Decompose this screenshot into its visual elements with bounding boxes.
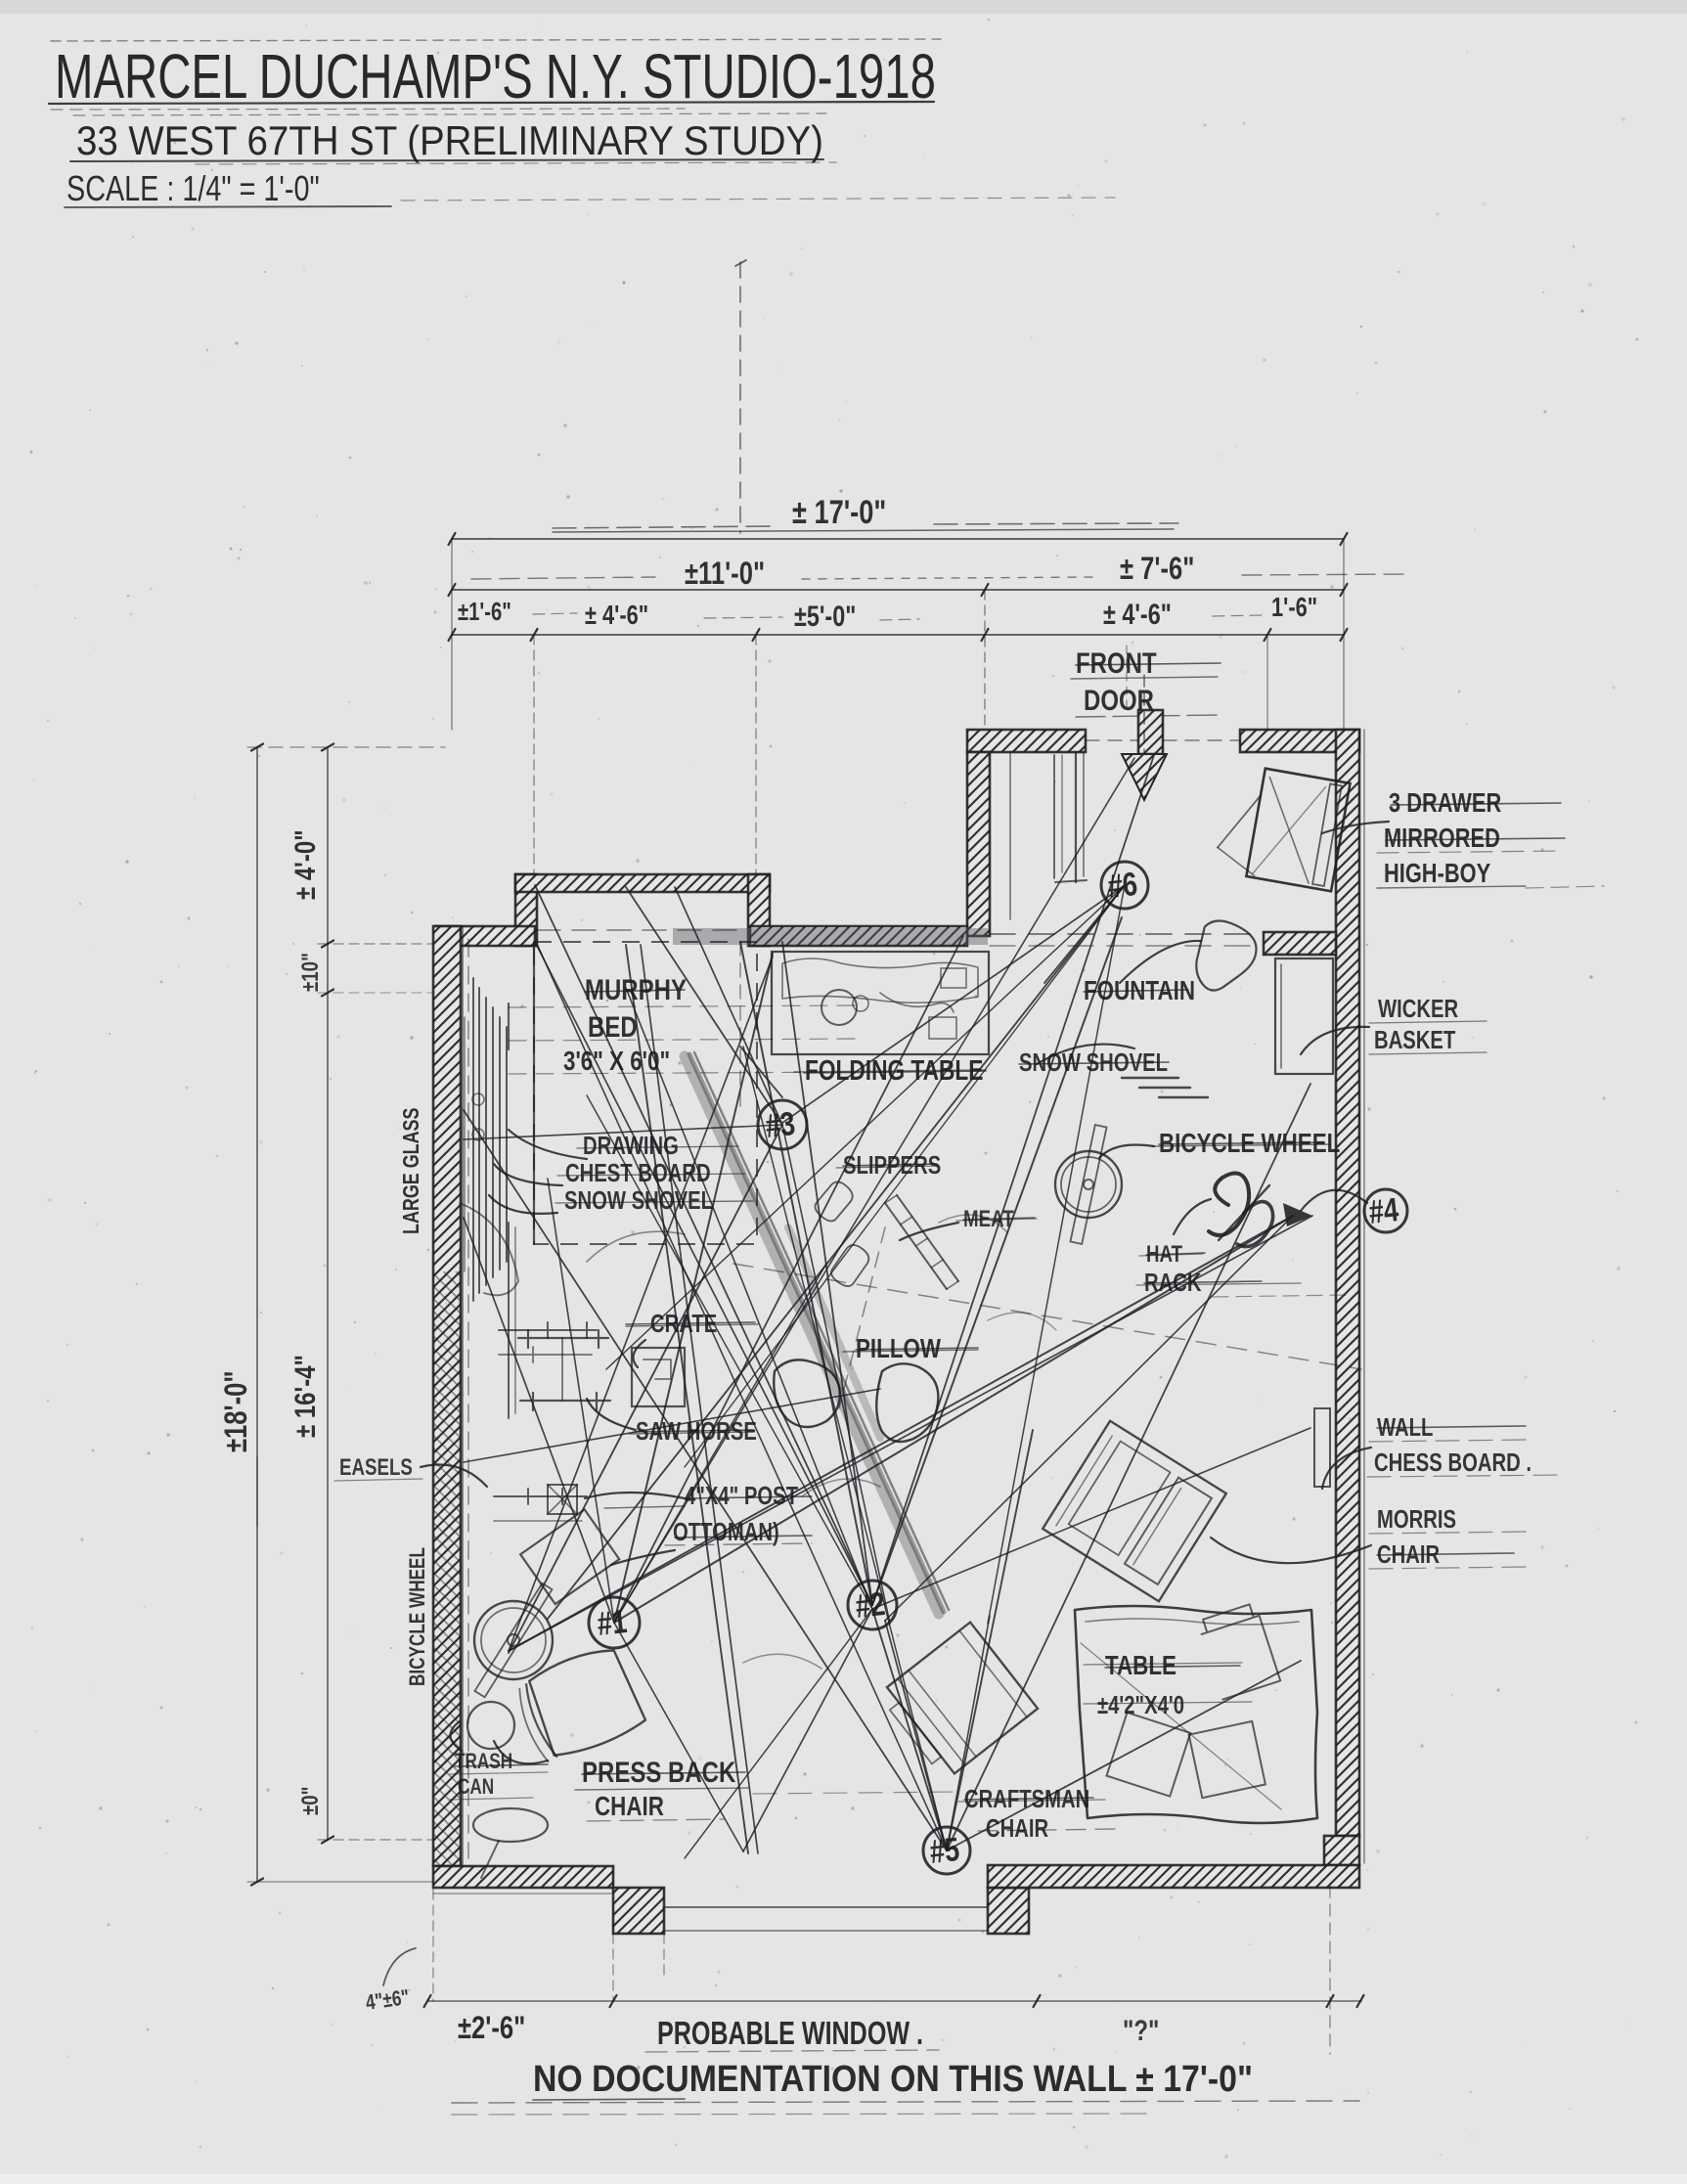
svg-text:±4'2"X4'0: ±4'2"X4'0 [1097, 1691, 1184, 1719]
svg-text:± 4'-0": ± 4'-0" [288, 829, 321, 900]
svg-text:33 WEST 67TH ST (PRELIMINARY: 33 WEST 67TH ST (PRELIMINARY STUDY) [76, 119, 823, 164]
svg-text:CHAIR: CHAIR [595, 1792, 664, 1822]
svg-text:BICYCLE WHEEL: BICYCLE WHEEL [406, 1547, 430, 1686]
svg-text:CAN: CAN [458, 1775, 494, 1800]
svg-text:WICKER: WICKER [1378, 995, 1458, 1023]
svg-text:4"X4" POST: 4"X4" POST [685, 1482, 798, 1510]
svg-text:EASELS: EASELS [339, 1454, 413, 1481]
svg-text:#3: #3 [764, 1104, 797, 1145]
svg-text:MORRIS: MORRIS [1377, 1505, 1456, 1534]
svg-text:BASKET: BASKET [1374, 1026, 1455, 1054]
svg-text:SNOW SHOVEL: SNOW SHOVEL [564, 1186, 713, 1215]
svg-text:±5'-0": ±5'-0" [794, 600, 856, 632]
svg-text:1'-6": 1'-6" [1271, 592, 1317, 622]
svg-text:CHAIR: CHAIR [986, 1814, 1048, 1843]
svg-text:± 4'-6": ± 4'-6" [1103, 598, 1172, 630]
svg-text:CHEST BOARD: CHEST BOARD [565, 1159, 711, 1187]
svg-text:±2'-6": ±2'-6" [458, 2011, 525, 2045]
svg-text:± 16'-4": ± 16'-4" [288, 1355, 321, 1438]
svg-text:TABLE: TABLE [1105, 1651, 1176, 1681]
svg-text:PROBABLE WINDOW .: PROBABLE WINDOW . [657, 2016, 923, 2051]
svg-text:SCALE : 1/4" = 1'-0": SCALE : 1/4" = 1'-0" [67, 168, 320, 208]
svg-text:HIGH-BOY: HIGH-BOY [1384, 858, 1490, 888]
svg-text:#6: #6 [1106, 865, 1139, 906]
svg-text:3'6" X 6'0": 3'6" X 6'0" [563, 1047, 670, 1077]
svg-text:#5: #5 [928, 1830, 961, 1871]
svg-text:MIRRORED: MIRRORED [1384, 823, 1500, 853]
svg-text:± 17'-0": ± 17'-0" [792, 493, 886, 531]
svg-text:LARGE GLASS: LARGE GLASS [399, 1108, 424, 1234]
svg-text:#2: #2 [854, 1584, 887, 1626]
svg-text:CHESS BOARD .: CHESS BOARD . [1374, 1449, 1532, 1477]
svg-text:"?": "?" [1123, 2013, 1159, 2046]
svg-text:± 7'-6": ± 7'-6" [1120, 552, 1194, 586]
svg-text:#4: #4 [1367, 1190, 1400, 1231]
svg-text:±11'-0": ±11'-0" [685, 557, 765, 591]
svg-text:± 4'-6": ± 4'-6" [585, 600, 648, 630]
svg-text:DRAWING: DRAWING [583, 1132, 679, 1160]
svg-text:#1: #1 [596, 1602, 629, 1643]
svg-text:±18'-0": ±18'-0" [219, 1371, 253, 1453]
svg-text:3 DRAWER: 3 DRAWER [1389, 787, 1501, 818]
svg-text:PRESS BACK: PRESS BACK [582, 1755, 736, 1788]
svg-text:OTTOMAN): OTTOMAN) [673, 1518, 779, 1546]
svg-text:BED: BED [588, 1009, 638, 1043]
svg-text:±10": ±10" [297, 953, 324, 992]
svg-text:±0": ±0" [297, 1786, 324, 1815]
svg-text:TRASH: TRASH [455, 1750, 512, 1774]
svg-text:NO DOCUMENTATION ON THIS W: NO DOCUMENTATION ON THIS WALL ± 17'-0" [533, 2059, 1253, 2100]
svg-text:±1'-6": ±1'-6" [458, 598, 511, 626]
